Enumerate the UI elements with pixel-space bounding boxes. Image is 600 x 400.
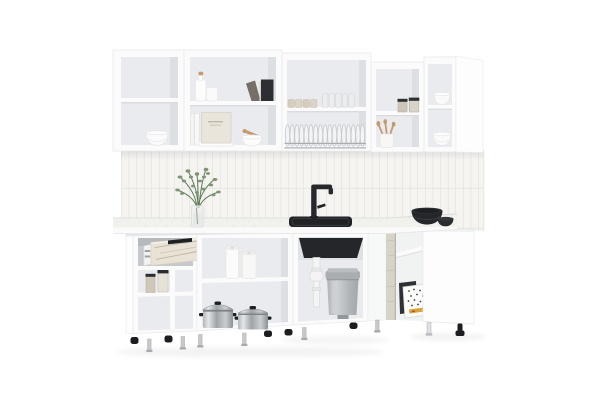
corner-inner-panel [368, 229, 386, 322]
wall-cabinet-4 [371, 62, 424, 152]
glass-vase [192, 206, 204, 228]
base-cabinets [126, 228, 474, 334]
wall-cabinet-3 [282, 53, 371, 151]
wall-cabinet-2 [184, 50, 282, 151]
base-cabinet-sink-unit [293, 233, 368, 325]
concrete-corner-post [386, 228, 396, 320]
white-books [191, 114, 200, 146]
wall-cabinets [113, 50, 483, 153]
corner-side-panel [456, 56, 483, 153]
base-cabinet-open-unit [197, 234, 293, 332]
under-sink-basin [299, 238, 363, 258]
kitchen-illustration [0, 0, 600, 400]
right-base-cabinet [423, 229, 474, 325]
dish-rack-with-plates [285, 125, 367, 149]
pedal-bin [326, 268, 361, 319]
corner-wall-cabinet [424, 56, 483, 153]
wall-cabinet-1 [113, 50, 184, 151]
kitchen-product-photo: white-corner-kitchen-set [0, 0, 600, 400]
beige-box [199, 113, 233, 147]
base-left-side-panel [126, 234, 133, 334]
glasses [323, 94, 355, 107]
